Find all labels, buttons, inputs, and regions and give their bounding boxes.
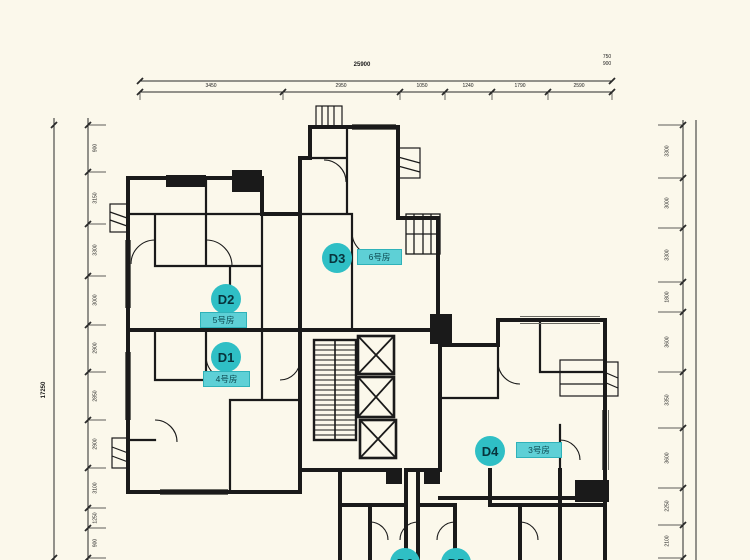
dim-label-top-seg: 1240 [462, 84, 473, 89]
dim-label-left-seg: 3150 [94, 192, 99, 203]
dim-label-left-seg: 3000 [94, 294, 99, 305]
dim-label-right-seg: 1800 [666, 291, 671, 302]
dimension-line-left [51, 118, 106, 560]
dim-label-right-seg: 3350 [666, 394, 671, 405]
entry-porch-steps [316, 106, 342, 127]
dim-label-left-seg: 2850 [94, 390, 99, 401]
dim-label-right-seg: 3300 [666, 145, 671, 156]
dim-label-top-end: 900 [603, 62, 611, 67]
unit-room-pill-d1[interactable]: 4号房 [203, 371, 250, 387]
dim-label-left-seg: 2900 [94, 438, 99, 449]
dim-label-left-seg: 900 [94, 539, 99, 547]
dim-label-left-seg: 900 [94, 144, 99, 152]
unit-badge-d2[interactable]: D2 [211, 284, 241, 314]
exterior-walls [128, 127, 605, 560]
dim-label-right-seg: 2250 [666, 500, 671, 511]
dim-label-top-total: 25900 [354, 62, 371, 68]
stairwell [314, 340, 356, 440]
dim-label-left-total: 17250 [41, 382, 47, 399]
dim-label-top-seg: 1790 [514, 84, 525, 89]
dim-label-left-seg: 3300 [94, 244, 99, 255]
dim-label-top-seg: 3450 [205, 84, 216, 89]
unit-badge-d3[interactable]: D3 [322, 243, 352, 273]
dim-label-right-seg: 3600 [666, 452, 671, 463]
dim-label-top-seg: 1050 [416, 84, 427, 89]
dim-label-top-seg: 2590 [573, 84, 584, 89]
dim-label-left-seg: 1250 [94, 512, 99, 523]
dim-label-left-seg: 3100 [94, 482, 99, 493]
floor-plan-drawing [0, 0, 750, 560]
elevator-shafts [358, 336, 396, 458]
dim-label-top-seg: 2950 [335, 84, 346, 89]
unit-badge-d1[interactable]: D1 [211, 342, 241, 372]
dim-label-right-seg: 3000 [666, 197, 671, 208]
dim-label-left-seg: 2900 [94, 342, 99, 353]
dim-label-right-seg: 2100 [666, 535, 671, 546]
dimension-line-top [137, 78, 615, 100]
dim-label-right-seg: 3300 [666, 249, 671, 260]
dim-label-right-seg: 3600 [666, 336, 671, 347]
dim-label-top-end: 750 [603, 55, 611, 60]
unit-badge-d4[interactable]: D4 [475, 436, 505, 466]
unit-room-pill-d4[interactable]: 3号房 [516, 442, 562, 458]
unit-room-pill-d2[interactable]: 5号房 [200, 312, 247, 328]
unit-room-pill-d3[interactable]: 6号房 [357, 249, 402, 265]
floor-plan-canvas: 25900 3450 2950 1050 1240 1790 2590 750 … [0, 0, 750, 560]
